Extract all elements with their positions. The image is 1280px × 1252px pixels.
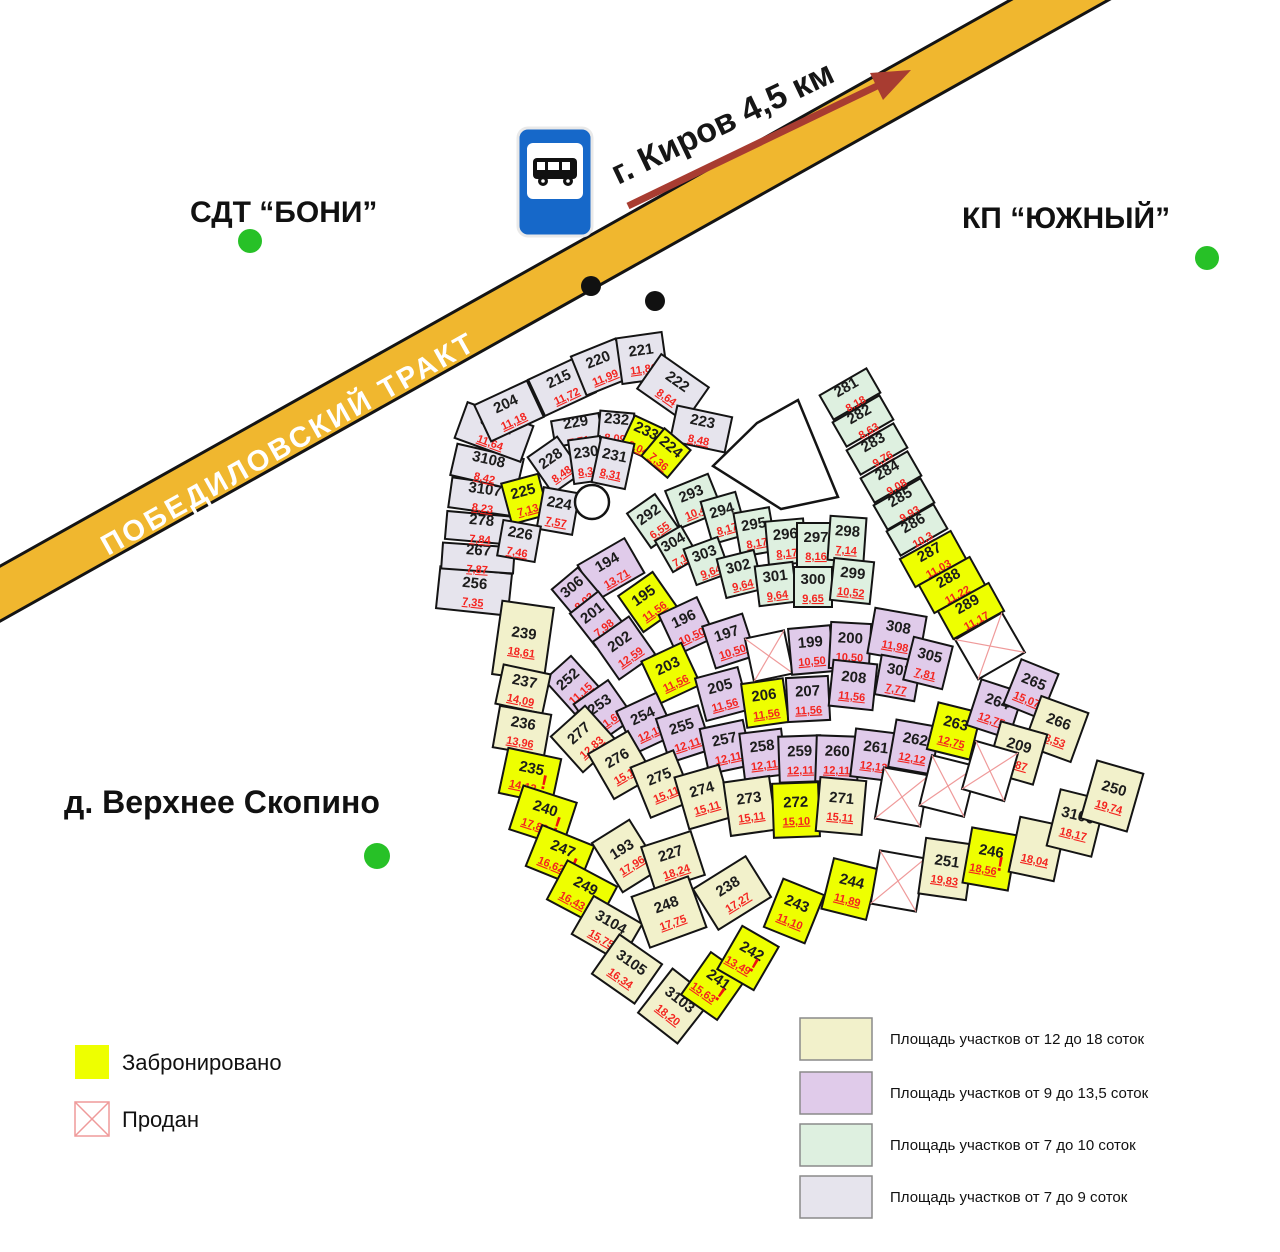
plot-224[interactable]: 2247,57 [537, 487, 580, 535]
plot-250[interactable]: 25019,74 [1081, 761, 1144, 832]
size-class-swatch-3 [800, 1124, 872, 1166]
plot-number: 256 [461, 574, 488, 594]
plot-300[interactable]: 3009,65 [794, 567, 832, 607]
size-class-swatch-2 [800, 1072, 872, 1114]
size-class-label-3: Площадь участков от 7 до 10 соток [890, 1137, 1136, 1154]
kp-yuzhny-label: КП “ЮЖНЫЙ” [962, 201, 1170, 235]
plot-area-value: 9,65 [802, 593, 823, 605]
village-dot [364, 843, 390, 869]
road-point-dot-1 [581, 276, 601, 296]
plot-area-value: 8,17 [776, 547, 798, 561]
plot-number: 200 [837, 629, 863, 647]
plot-area-value: 15,11 [826, 811, 854, 825]
plot-number: 258 [749, 737, 776, 757]
plot-map-canvas: ПОБЕДИЛОВСКИЙ ТРАКТ г. Киров 4,5 км СДТ … [0, 0, 1280, 1252]
plot-number: 221 [627, 340, 654, 360]
plot-207[interactable]: 20711,56 [786, 676, 830, 722]
reserved-label: Забронировано [122, 1050, 282, 1075]
plot-number: 299 [839, 564, 866, 584]
plot-area-value: 10,50 [798, 655, 826, 669]
plot-area-value: 12,11 [823, 765, 850, 778]
plot-area-value: 15,10 [782, 816, 810, 829]
sdt-boni-label: СДТ “БОНИ” [190, 196, 377, 229]
plot-299[interactable]: 29910,52 [830, 558, 874, 604]
road-pobedilovsky-trakt [0, 0, 1162, 638]
plot-number: 271 [828, 789, 854, 808]
size-class-swatch-1 [800, 1018, 872, 1060]
plot-238[interactable]: 23817,27 [693, 856, 771, 930]
plot-272[interactable]: 27215,10 [772, 782, 820, 838]
kp-yuzhny-dot [1195, 246, 1219, 270]
plot-sold[interactable] [871, 850, 926, 911]
plot-273[interactable]: 27315,11 [723, 776, 776, 836]
village-label: д. Верхнее Скопино [64, 784, 380, 820]
plot-area-value: 8,16 [805, 551, 826, 563]
plot-226[interactable]: 2267,46 [497, 520, 541, 562]
plot-301[interactable]: 3019,64 [755, 562, 798, 606]
road-point-dot-2 [645, 291, 665, 311]
legend-size-classes: Площадь участков от 12 до 18 соток Площа… [800, 1018, 1149, 1218]
plot-number: 296 [772, 525, 798, 544]
plot-area-value: 7,14 [835, 544, 858, 558]
sold-label: Продан [122, 1107, 199, 1132]
plot-199[interactable]: 19910,50 [788, 625, 834, 674]
plot-number: 199 [797, 633, 823, 652]
plot-number: 232 [603, 410, 629, 429]
plot-area-value: 7,84 [469, 533, 492, 547]
plot-area-value: 12,11 [787, 765, 814, 778]
plot-area-value: 11,56 [795, 704, 823, 717]
plot-244[interactable]: 24411,89 [821, 858, 878, 920]
plot-271[interactable]: 27115,11 [816, 777, 867, 835]
plot-246[interactable]: 24618,56! [962, 827, 1017, 890]
plot-number: 251 [933, 851, 960, 871]
plot-205[interactable]: 20511,56 [695, 667, 749, 721]
road-name-label: ПОБЕДИЛОВСКИЙ ТРАКТ [95, 325, 482, 563]
plot-number: 208 [840, 668, 867, 688]
plot-208[interactable]: 20811,56 [829, 660, 878, 710]
plot-number: 207 [795, 682, 821, 700]
plot-number: 298 [834, 522, 860, 541]
plot-area-value: 7,35 [461, 596, 484, 610]
plot-number: 206 [750, 685, 777, 705]
plot-number: 261 [862, 738, 889, 758]
legend-status: Забронировано Продан [75, 1045, 282, 1136]
plot-number: 273 [735, 788, 762, 808]
plot-number: 301 [762, 567, 789, 587]
plot-number: 260 [824, 743, 850, 761]
size-class-label-4: Площадь участков от 7 до 9 соток [890, 1189, 1128, 1206]
plot-243[interactable]: 24311,10 [764, 879, 824, 944]
sold-swatch [75, 1102, 109, 1136]
bus-stop-sign-icon [518, 128, 592, 236]
size-class-label-1: Площадь участков от 12 до 18 соток [890, 1031, 1144, 1048]
plot-area-value: 7,87 [466, 563, 488, 576]
plot-number: 272 [783, 794, 809, 812]
plot-sold[interactable] [745, 630, 793, 681]
plot-number: 239 [510, 623, 537, 643]
cul-de-sac-circle [575, 485, 609, 519]
plot-number: 300 [800, 571, 825, 588]
plot-206[interactable]: 20611,56 [741, 678, 789, 727]
plot-236[interactable]: 23613,96 [493, 706, 552, 756]
size-class-swatch-4 [800, 1176, 872, 1218]
size-class-label-2: Площадь участков от 9 до 13,5 соток [890, 1085, 1149, 1102]
sdt-boni-dot [238, 229, 262, 253]
plot-number: 259 [787, 743, 813, 761]
plot-number: 297 [803, 529, 828, 546]
reserved-swatch [75, 1045, 109, 1079]
plot-298[interactable]: 2987,14 [828, 516, 867, 562]
